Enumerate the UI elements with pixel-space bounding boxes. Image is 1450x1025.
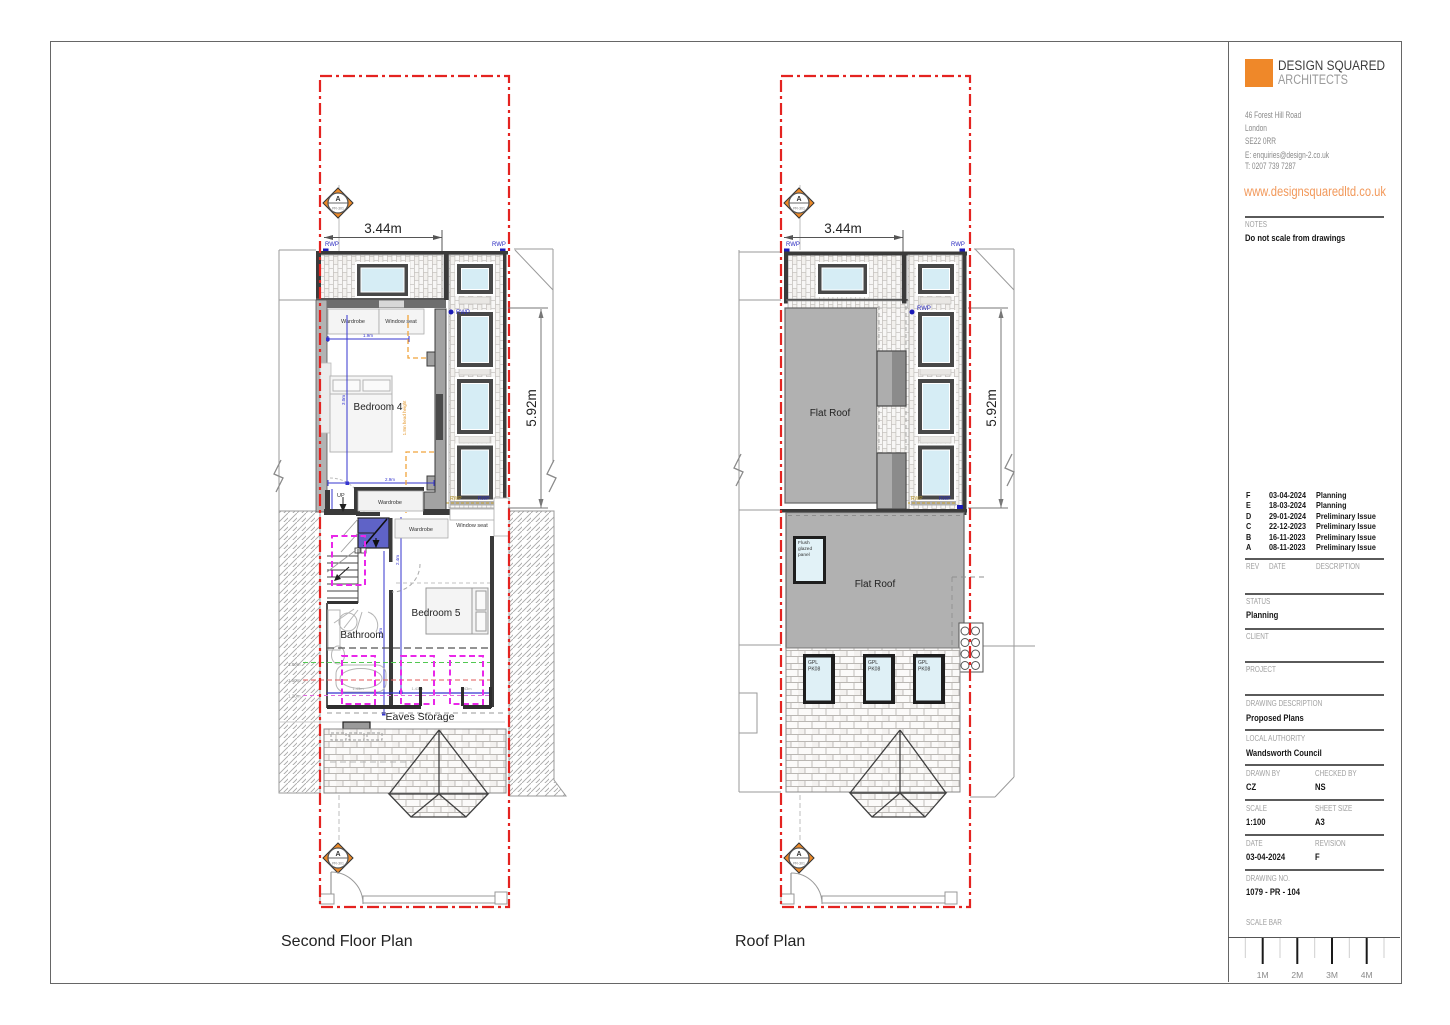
svg-text:GPL: GPL [808,660,818,666]
svg-text:RWP: RWP [492,242,506,248]
svg-text:PK08: PK08 [918,667,930,673]
svg-text:Flush: Flush [798,540,810,546]
svg-text:RWP: RWP [917,306,931,312]
svg-text:Window seat: Window seat [385,319,417,325]
svg-text:Flat Roof: Flat Roof [855,579,896,590]
svg-text:Wardrobe: Wardrobe [409,527,433,533]
svg-text:GPL: GPL [918,660,928,666]
svg-text:Eaves Storage: Eaves Storage [386,711,455,723]
svg-text:Flat Roof: Flat Roof [810,408,851,419]
svg-text:RWP: RWP [786,242,800,248]
svg-text:1.50m: 1.50m [288,678,301,683]
svg-text:PR-301: PR-301 [793,862,805,866]
svg-text:Wardrobe: Wardrobe [378,500,402,506]
svg-text:5.92m: 5.92m [984,389,999,427]
svg-text:RWP: RWP [450,496,462,502]
svg-text:3.0m: 3.0m [341,395,346,405]
svg-text:RWP: RWP [911,496,923,502]
svg-text:RWP: RWP [478,496,490,502]
svg-text:A: A [796,196,801,203]
svg-text:Bedroom 5: Bedroom 5 [412,608,461,619]
svg-text:2.9m: 2.9m [385,477,395,482]
svg-text:1.43m: 1.43m [352,686,364,691]
svg-text:UP: UP [337,493,345,499]
svg-text:Bathroom: Bathroom [340,630,383,641]
svg-text:Wardrobe: Wardrobe [341,319,365,325]
svg-text:RWP: RWP [456,310,470,316]
svg-text:1.8m head height: 1.8m head height [402,400,407,436]
svg-text:3.44m: 3.44m [364,221,402,236]
svg-text:1.80m: 1.80m [288,662,301,667]
svg-text:RWP: RWP [939,496,951,502]
svg-text:5.92m: 5.92m [524,389,539,427]
svg-text:PK08: PK08 [808,667,820,673]
svg-text:RWP: RWP [951,242,965,248]
svg-text:3.44m: 3.44m [824,221,862,236]
svg-text:panel: panel [798,552,810,558]
svg-text:glazed: glazed [798,546,812,552]
svg-text:PR-301: PR-301 [332,207,344,211]
svg-text:A: A [796,851,801,858]
svg-text:PR-301: PR-301 [332,862,344,866]
svg-text:Bedroom 4: Bedroom 4 [354,402,403,413]
svg-text:1.20m: 1.20m [288,694,301,699]
svg-text:2.4m: 2.4m [395,555,400,565]
svg-text:GPL: GPL [868,660,878,666]
svg-text:Window seat: Window seat [456,523,488,529]
svg-text:RWP: RWP [325,242,339,248]
svg-text:1.9m: 1.9m [363,333,373,338]
svg-text:A: A [335,851,340,858]
svg-text:PR-301: PR-301 [793,207,805,211]
svg-text:A: A [335,196,340,203]
svg-text:PK08: PK08 [868,667,880,673]
